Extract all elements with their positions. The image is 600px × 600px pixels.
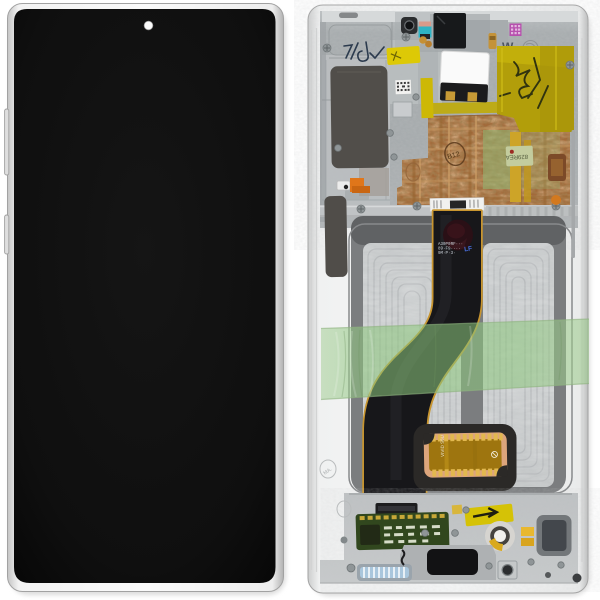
svg-text:89·F9····: 89·F9···· xyxy=(438,248,461,252)
svg-text:LF: LF xyxy=(464,245,473,253)
svg-text:829REA: 829REA xyxy=(506,153,529,160)
svg-text:A30P0RF···: A30P0RF··· xyxy=(438,243,463,247)
svg-text:VIVID S6U: VIVID S6U xyxy=(440,435,445,457)
svg-text:9M·P·3·: 9M·P·3· xyxy=(438,252,456,256)
